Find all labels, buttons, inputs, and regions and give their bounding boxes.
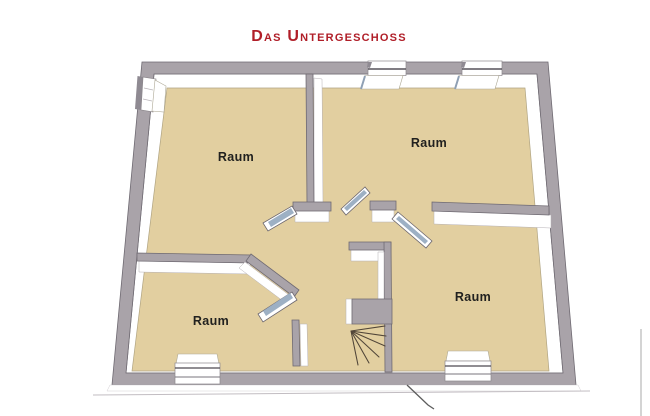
room-label-bottom-right: Raum [455, 290, 491, 304]
window-top-2 [455, 61, 502, 89]
wall-base-band [107, 385, 581, 391]
window-bottom-2 [445, 351, 491, 381]
floor [132, 88, 549, 371]
ground-line [93, 391, 590, 395]
room-label-top-left: Raum [218, 150, 254, 164]
page-title: Das Untergeschoss [251, 28, 407, 45]
window-top-1 [361, 61, 406, 89]
room-label-top-right: Raum [411, 136, 447, 150]
building [93, 61, 641, 416]
room-label-bottom-left: Raum [193, 314, 229, 328]
floor-plan-page: Das Untergeschoss [0, 0, 650, 416]
window-bottom-1 [175, 354, 220, 384]
floor-plan-drawing: Das Untergeschoss [0, 0, 650, 416]
